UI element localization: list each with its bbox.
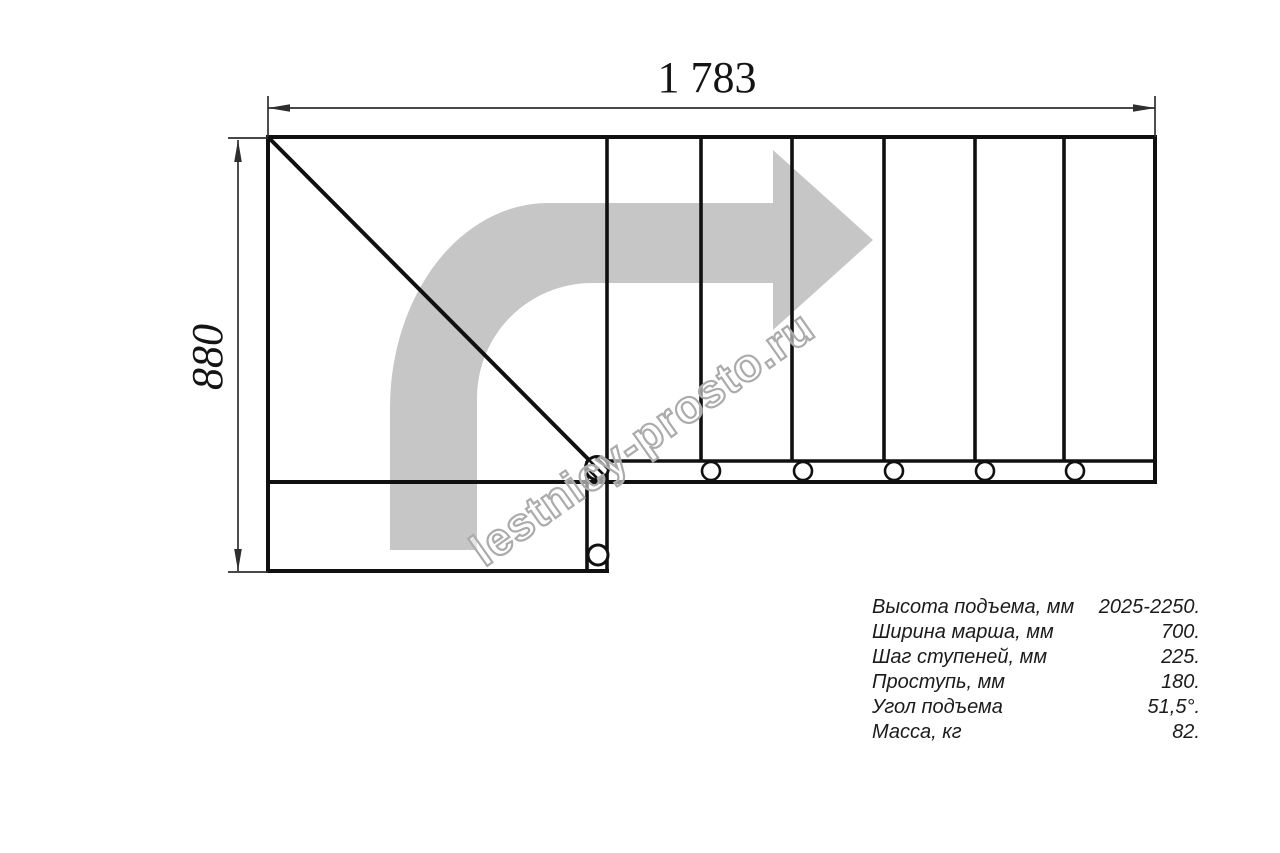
specs-table: Высота подъема, мм 2025-2250. Ширина мар… [872,595,1200,745]
spec-row-angle: Угол подъема 51,5°. [872,695,1200,720]
spec-label: Угол подъема [872,695,1003,720]
spec-row-height: Высота подъема, мм 2025-2250. [872,595,1200,620]
spec-label: Проступь, мм [872,670,1005,695]
spec-label: Шаг ступеней, мм [872,645,1047,670]
tread-dividers [586,137,1155,571]
baluster-circles [702,462,1084,480]
spec-label: Масса, кг [872,720,962,745]
spec-row-mass: Масса, кг 82. [872,720,1200,745]
spec-value: 225. [1161,645,1200,670]
spec-value: 700. [1161,620,1200,645]
spec-value: 82. [1172,720,1200,745]
newel-post-circle [588,545,608,565]
dimension-arrowheads [234,104,1155,571]
spec-value: 51,5°. [1148,695,1200,720]
spec-row-march-width: Ширина марша, мм 700. [872,620,1200,645]
spec-value: 180. [1161,670,1200,695]
dimension-height-label: 880 [186,324,230,390]
spec-row-tread: Проступь, мм 180. [872,670,1200,695]
dimension-width-label: 1 783 [658,56,757,100]
spec-label: Ширина марша, мм [872,620,1054,645]
spec-label: Высота подъема, мм [872,595,1074,620]
dimension-lines [228,96,1155,572]
spec-row-step: Шаг ступеней, мм 225. [872,645,1200,670]
stair-plan-page: 1 783 880 lestnicy-prosto.ru Высота подъ… [0,0,1280,853]
spec-value: 2025-2250. [1099,595,1200,620]
